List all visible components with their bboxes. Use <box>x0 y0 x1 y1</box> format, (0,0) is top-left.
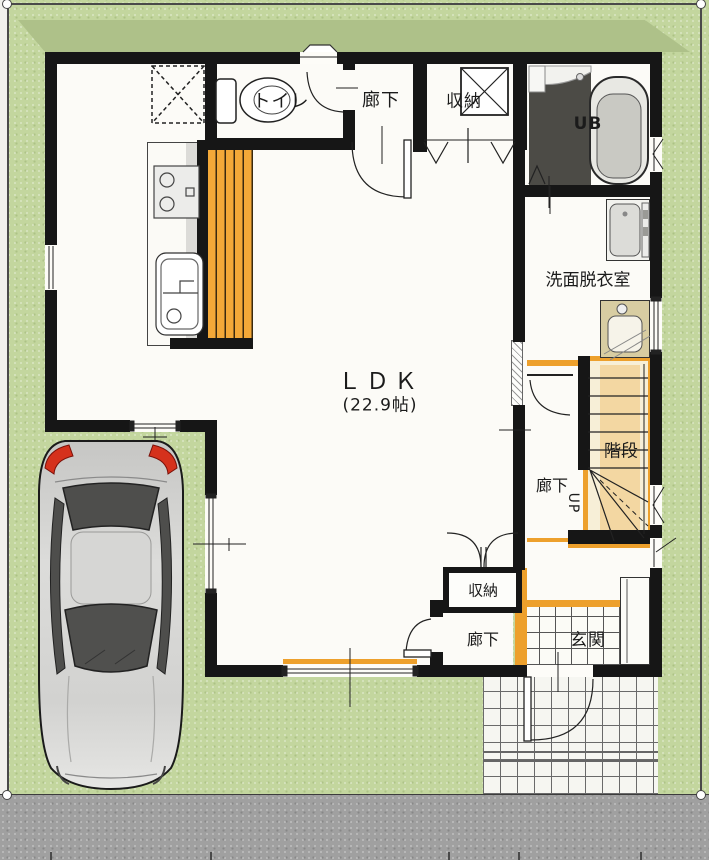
window-top-hall <box>300 52 337 64</box>
wall-segment <box>45 420 130 432</box>
room-label-storage-top: 収納 <box>446 87 482 112</box>
vanity-unit <box>600 300 650 358</box>
boundary-point <box>2 790 12 800</box>
wall-segment <box>513 52 527 150</box>
kitchen-divider-wall <box>197 140 208 348</box>
porch-tiles <box>483 677 658 794</box>
stairs-up-label: UP <box>565 493 581 514</box>
entrance-step-edge <box>523 600 622 607</box>
window-ldk-south <box>283 665 417 677</box>
room-label-washroom: 洗面脱衣室 <box>546 266 631 291</box>
wall-segment <box>578 356 590 470</box>
wall-segment <box>568 530 650 544</box>
kitchen-wood-bar <box>208 142 253 338</box>
wall-segment <box>413 52 427 152</box>
kitchen-bar-base <box>170 338 253 349</box>
floor-plan-canvas: ＬＤＫ (22.9帖) トイレ 廊下 収納 UB 洗面脱衣室 階段 廊下 UP … <box>0 0 709 860</box>
porch-step-edge <box>483 751 658 762</box>
room-label-toilet: トイレ <box>253 87 310 113</box>
window-left-upper <box>45 245 57 290</box>
road-mark <box>640 852 642 860</box>
road-mark <box>518 852 520 860</box>
wall-segment <box>205 52 217 150</box>
pocket-door <box>511 340 523 406</box>
room-label-ldk-area: (22.9帖) <box>342 391 417 416</box>
washroom-door-sill <box>527 360 578 366</box>
room-label-hallway-bottom: 廊下 <box>467 626 499 650</box>
boundary-point <box>2 0 12 9</box>
wall-segment <box>650 525 662 538</box>
window-driveway <box>130 420 180 432</box>
room-label-stairs: 階段 <box>604 437 638 462</box>
wall-segment <box>45 52 57 245</box>
wall-segment <box>343 52 355 70</box>
window-bath <box>650 137 662 172</box>
boundary-line-right <box>700 3 702 795</box>
road <box>0 794 709 860</box>
windshield <box>65 604 157 672</box>
room-label-storage-bottom: 収納 <box>468 580 498 601</box>
room-label-unit-bath: UB <box>574 114 603 134</box>
window-washroom <box>650 298 662 352</box>
window-sill-ldk-south <box>283 659 417 664</box>
wall-segment <box>337 52 662 64</box>
wall-segment <box>205 420 217 495</box>
window-stairs <box>650 485 662 525</box>
wall-segment <box>45 52 300 64</box>
wall-segment <box>205 138 355 150</box>
window-entrance <box>650 538 662 568</box>
wall-segment <box>650 568 662 677</box>
rear-window <box>63 483 159 530</box>
wall-segment <box>521 185 662 197</box>
room-label-hallway-top: 廊下 <box>362 86 400 112</box>
boundary-point <box>696 0 706 9</box>
shoe-cabinet <box>620 577 650 665</box>
car-top-view <box>35 436 187 792</box>
wall-segment <box>650 352 662 485</box>
boundary-line-left <box>7 3 9 795</box>
wall-segment <box>650 52 662 137</box>
wall-segment <box>205 665 283 677</box>
roof <box>71 532 151 604</box>
wall-segment <box>513 405 525 570</box>
wall-segment <box>343 110 355 150</box>
room-label-entrance: 玄関 <box>570 626 606 651</box>
stairs-bottom-sill <box>568 544 650 548</box>
building-shadow <box>0 0 709 60</box>
road-mark <box>50 852 52 860</box>
road-mark <box>210 852 212 860</box>
boundary-point <box>696 790 706 800</box>
room-label-hallway-mid: 廊下 <box>536 472 568 496</box>
wall-segment <box>513 150 525 342</box>
washing-machine <box>606 199 650 261</box>
wall-segment <box>45 290 57 432</box>
hall-entrance-sill <box>527 538 568 542</box>
wall-segment <box>430 652 443 677</box>
wall-segment <box>430 600 443 617</box>
window-left-lower <box>205 495 217 593</box>
front-door-opening <box>527 665 593 677</box>
road-mark <box>448 852 450 860</box>
boundary-line-top <box>7 3 702 5</box>
